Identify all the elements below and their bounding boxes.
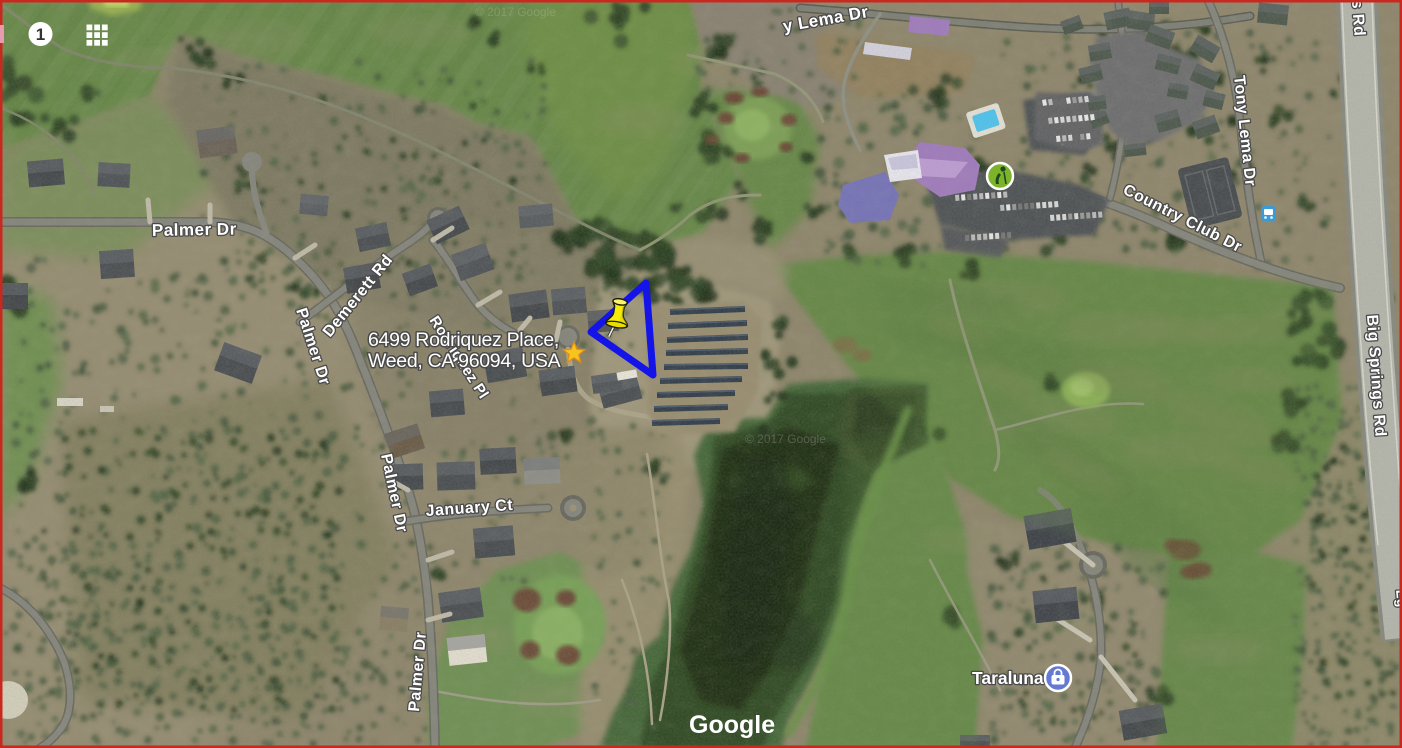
svg-text:6499 Rodriquez Place,: 6499 Rodriquez Place,	[368, 329, 559, 351]
svg-text:Weed, CA 96094, USA: Weed, CA 96094, USA	[368, 350, 561, 372]
svg-text:© 2017 Google: © 2017 Google	[475, 5, 556, 19]
svg-text:1: 1	[36, 25, 45, 44]
svg-text:Google: Google	[689, 711, 775, 739]
svg-text:s Rd: s Rd	[1348, 0, 1368, 37]
svg-text:© 2017 Google: © 2017 Google	[745, 432, 826, 446]
svg-text:Palmer Dr: Palmer Dr	[152, 220, 237, 240]
svg-text:Taraluna: Taraluna	[972, 668, 1044, 688]
